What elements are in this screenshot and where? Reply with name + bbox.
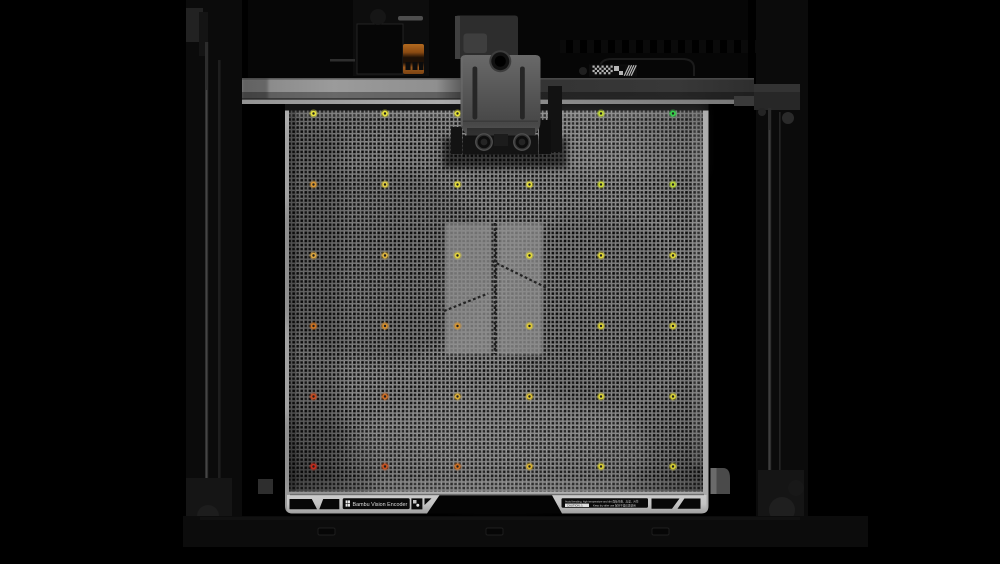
svg-text:Keep dry after use 保持干燥后再使用: Keep dry after use 保持干燥后再使用 bbox=[593, 503, 636, 507]
svg-text:Bambu Vision Encoder: Bambu Vision Encoder bbox=[353, 502, 408, 508]
svg-text:CAUTION ⚠: CAUTION ⚠ bbox=[567, 503, 583, 507]
